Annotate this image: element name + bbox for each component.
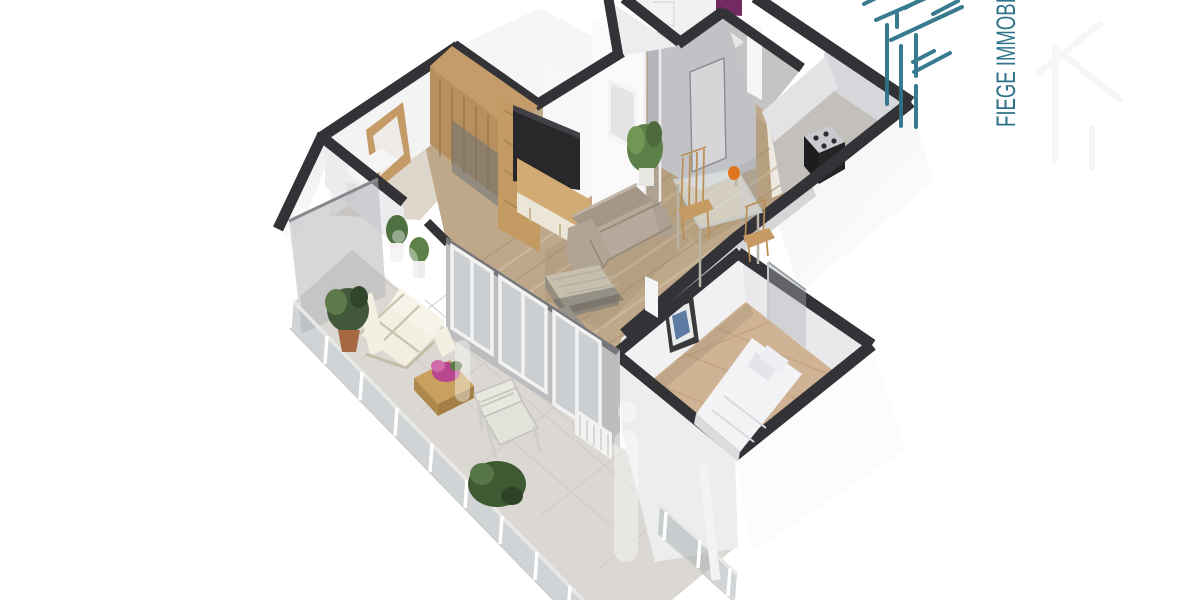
svg-text:FIEGE IMMOBILIEN: FIEGE IMMOBILIEN xyxy=(991,0,1021,127)
